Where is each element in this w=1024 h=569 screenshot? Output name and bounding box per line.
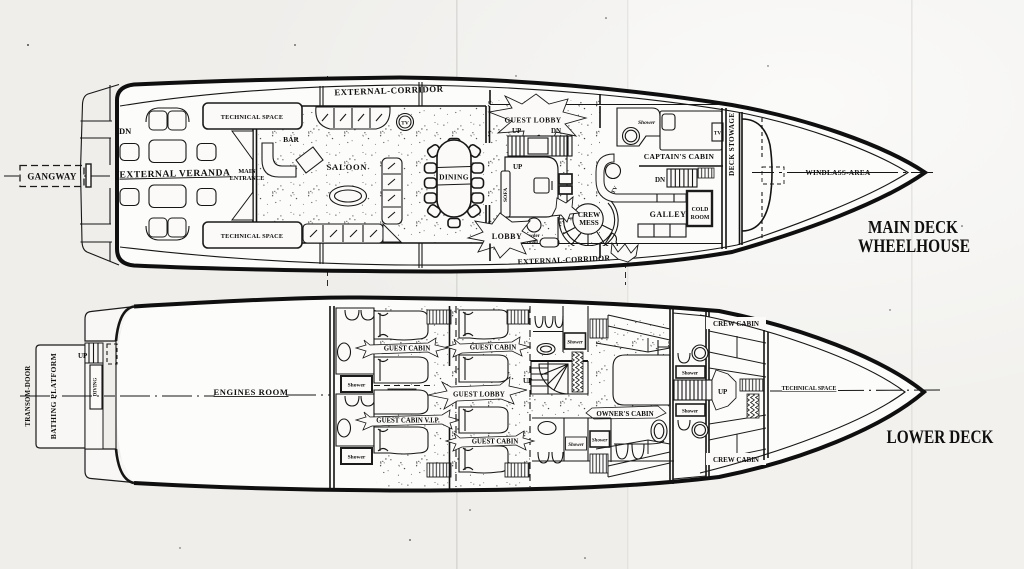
svg-text:Shower: Shower [568, 443, 584, 448]
svg-text:UP: UP [513, 163, 523, 171]
svg-text:COLD: COLD [692, 207, 709, 213]
svg-text:Shower: Shower [348, 455, 366, 461]
svg-text:TV: TV [401, 121, 409, 127]
svg-text:CREW: CREW [578, 211, 601, 219]
svg-text:UP: UP [523, 377, 533, 385]
svg-text:Shower: Shower [638, 120, 656, 126]
svg-text:LOBBY: LOBBY [492, 232, 523, 241]
svg-text:CAPTAIN'S CABIN: CAPTAIN'S CABIN [644, 152, 715, 161]
svg-text:Shower: Shower [348, 383, 366, 389]
svg-text:WHEELHOUSE: WHEELHOUSE [858, 237, 970, 257]
svg-text:SOFA: SOFA [503, 188, 509, 202]
svg-text:GUEST CABIN: GUEST CABIN [384, 346, 431, 353]
svg-text:DINING: DINING [439, 173, 469, 182]
svg-text:GUEST LOBBY: GUEST LOBBY [453, 391, 505, 399]
svg-text:DN: DN [119, 126, 132, 136]
svg-text:Shower: Shower [592, 439, 608, 444]
svg-text:TECHNICAL SPACE: TECHNICAL SPACE [221, 114, 284, 121]
svg-text:GALLEY: GALLEY [650, 210, 687, 219]
svg-text:GUEST CABIN V.I.P.: GUEST CABIN V.I.P. [376, 418, 440, 425]
svg-text:UP: UP [78, 352, 88, 360]
svg-text:LOWER DECK: LOWER DECK [887, 427, 994, 448]
svg-text:UP: UP [718, 388, 728, 396]
svg-text:GUEST CABIN: GUEST CABIN [470, 345, 517, 352]
svg-text:TECHNICAL SPACE: TECHNICAL SPACE [782, 386, 837, 392]
svg-text:DN: DN [655, 176, 665, 184]
svg-text:GUEST LOBBY: GUEST LOBBY [504, 116, 561, 125]
svg-text:UP: UP [512, 127, 522, 135]
svg-text:SALOON: SALOON [327, 162, 368, 172]
svg-text:DECK STOWAGE: DECK STOWAGE [728, 112, 736, 176]
svg-text:EXTERNAL VERANDA: EXTERNAL VERANDA [119, 167, 230, 180]
svg-text:DIVING: DIVING [94, 378, 99, 397]
svg-text:Shower: Shower [682, 410, 699, 415]
svg-text:MAIN DECK: MAIN DECK [868, 217, 958, 237]
svg-text:BAR: BAR [283, 135, 299, 144]
svg-text:ENTRANCE: ENTRANCE [230, 175, 265, 182]
svg-text:Shower: Shower [567, 341, 583, 346]
svg-text:TV: TV [714, 131, 721, 137]
svg-text:GANGWAY: GANGWAY [27, 172, 76, 182]
svg-text:MAIN: MAIN [238, 168, 256, 175]
svg-text:ENGINES ROOM: ENGINES ROOM [214, 387, 289, 397]
svg-text:DN: DN [551, 127, 561, 135]
svg-text:Shower: Shower [682, 372, 699, 377]
svg-text:ROOM: ROOM [691, 215, 710, 221]
svg-text:TECHNICAL SPACE: TECHNICAL SPACE [221, 233, 284, 240]
svg-text:OWNER'S CABIN: OWNER'S CABIN [596, 410, 653, 418]
svg-text:CREW CABIN: CREW CABIN [713, 456, 759, 464]
svg-text:GUEST CABIN: GUEST CABIN [472, 439, 519, 446]
svg-text:MESS: MESS [579, 219, 599, 227]
